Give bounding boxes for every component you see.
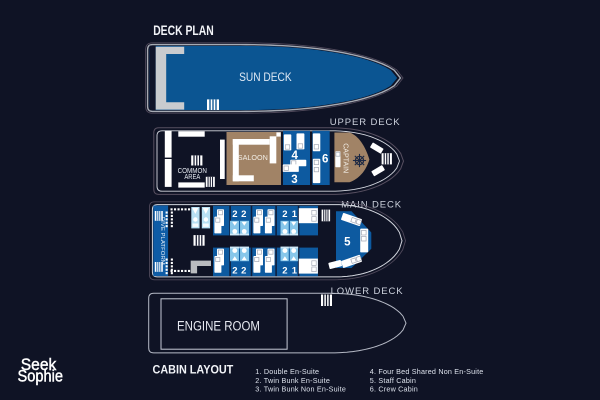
svg-text:DIVE PLATFORM: DIVE PLATFORM [159, 217, 165, 265]
svg-text:SALOON: SALOON [238, 153, 268, 162]
svg-text:1: 1 [292, 265, 298, 276]
svg-text:2: 2 [241, 265, 246, 276]
svg-text:3: 3 [291, 174, 297, 186]
svg-text:5. Staff Cabin: 5. Staff Cabin [370, 376, 416, 385]
svg-text:6: 6 [322, 154, 328, 166]
svg-text:CABIN LAYOUT: CABIN LAYOUT [153, 362, 234, 376]
svg-text:SUN DECK: SUN DECK [239, 72, 292, 84]
svg-text:DECK PLAN: DECK PLAN [153, 22, 214, 38]
svg-text:Sophie: Sophie [18, 367, 64, 385]
svg-text:MAIN DECK: MAIN DECK [341, 200, 402, 211]
svg-text:5: 5 [344, 236, 351, 248]
svg-text:2: 2 [282, 265, 287, 276]
svg-text:UPPER DECK: UPPER DECK [330, 117, 401, 128]
svg-text:LOWER DECK: LOWER DECK [331, 286, 404, 297]
svg-text:6. Crew Cabin: 6. Crew Cabin [370, 385, 418, 394]
svg-text:ENGINE ROOM: ENGINE ROOM [177, 318, 260, 333]
svg-text:AREA: AREA [184, 172, 200, 181]
svg-text:2: 2 [232, 209, 237, 220]
svg-text:1: 1 [292, 209, 298, 220]
svg-text:4. Four Bed Shared Non En-Suit: 4. Four Bed Shared Non En-Suite [370, 367, 484, 376]
svg-text:2. Twin Bunk En-Suite: 2. Twin Bunk En-Suite [255, 376, 330, 385]
svg-text:2: 2 [241, 209, 246, 220]
svg-text:3. Twin Bunk Non En-Suite: 3. Twin Bunk Non En-Suite [255, 385, 346, 394]
svg-text:CAPTAIN: CAPTAIN [342, 143, 349, 173]
svg-text:1. Double En-Suite: 1. Double En-Suite [255, 367, 319, 376]
svg-text:2: 2 [232, 265, 237, 276]
svg-text:2: 2 [282, 209, 287, 220]
